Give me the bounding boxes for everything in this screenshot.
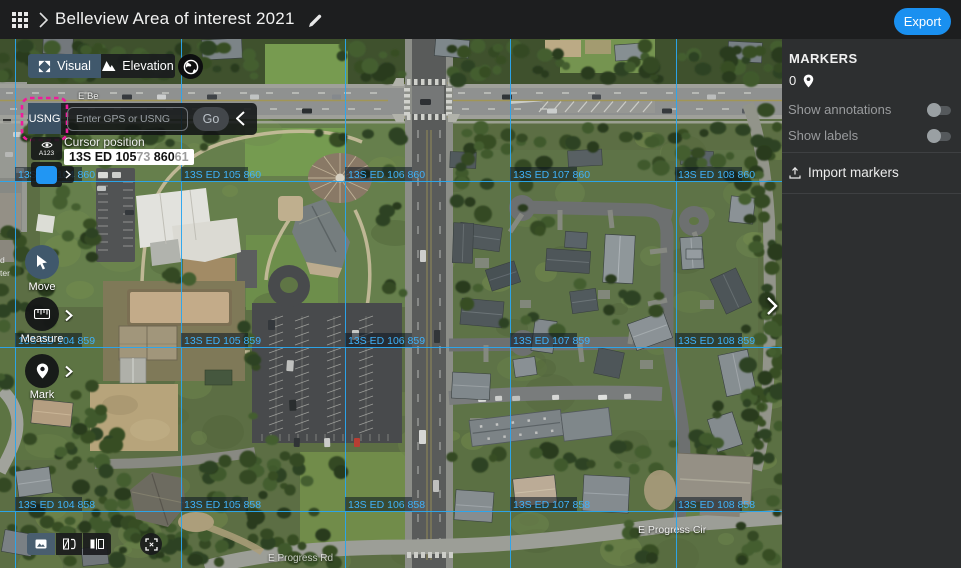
svg-text:13S ED 106 860: 13S ED 106 860 — [348, 169, 425, 181]
svg-text:13S ED 108 858: 13S ED 108 858 — [678, 499, 755, 511]
svg-text:13S ED 107 860: 13S ED 107 860 — [513, 169, 590, 181]
svg-text:13S ED 107 858: 13S ED 107 858 — [513, 499, 590, 511]
svg-text:13S ED 105 858: 13S ED 105 858 — [184, 499, 261, 511]
svg-text:13S ED 107 859: 13S ED 107 859 — [513, 335, 590, 347]
svg-text:13S ED 106 859: 13S ED 106 859 — [348, 335, 425, 347]
svg-text:13S ED 106 858: 13S ED 106 858 — [348, 499, 425, 511]
svg-text:13S ED 108 859: 13S ED 108 859 — [678, 335, 755, 347]
svg-text:13S ED 104 858: 13S ED 104 858 — [18, 499, 95, 511]
svg-text:13S ED 105 859: 13S ED 105 859 — [184, 335, 261, 347]
svg-text:13S ED 108 860: 13S ED 108 860 — [678, 169, 755, 181]
svg-text:13S ED 105 860: 13S ED 105 860 — [184, 169, 261, 181]
